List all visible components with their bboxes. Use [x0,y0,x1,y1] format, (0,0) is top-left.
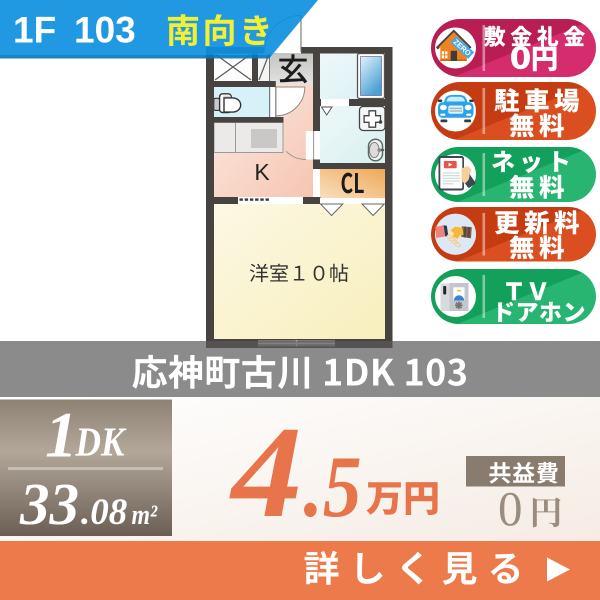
svg-text:1: 1 [45,400,78,472]
svg-text:0: 0 [498,481,523,536]
svg-text:1F: 1F [13,10,56,51]
svg-text:103: 103 [74,10,136,51]
svg-text:DK: DK [75,420,127,465]
svg-text:K: K [254,159,270,185]
svg-text:m²: m² [132,499,159,530]
svg-text:33: 33 [19,471,79,537]
svg-text:.08: .08 [81,492,127,533]
svg-text:4: 4 [228,401,302,545]
svg-text:.5: .5 [304,437,362,535]
